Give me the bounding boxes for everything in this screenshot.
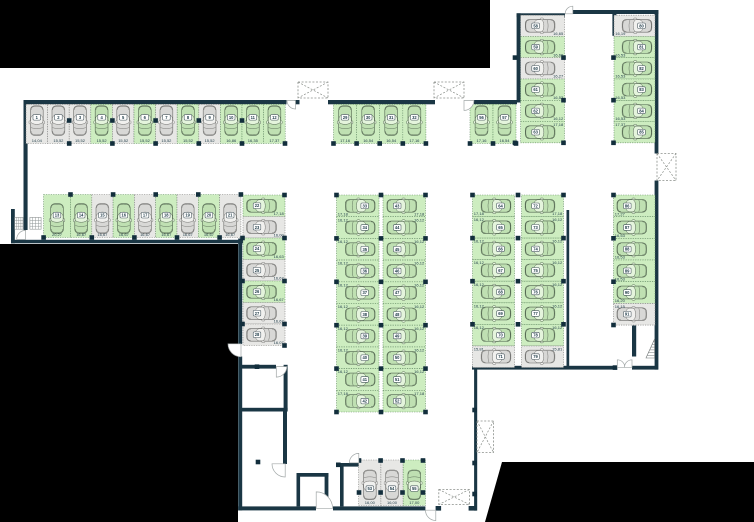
svg-text:19: 19	[185, 213, 190, 218]
svg-text:17,00: 17,00	[409, 500, 420, 505]
svg-text:17,37: 17,37	[269, 138, 280, 143]
svg-text:16,19: 16,19	[615, 31, 626, 36]
svg-text:16,12: 16,12	[414, 261, 425, 266]
svg-text:17,18: 17,18	[338, 211, 349, 216]
svg-text:47: 47	[395, 290, 400, 295]
svg-text:16,67: 16,67	[225, 232, 236, 237]
svg-text:42: 42	[363, 399, 368, 404]
svg-text:22: 22	[255, 203, 260, 208]
svg-text:17,37: 17,37	[615, 122, 626, 127]
svg-text:15,52: 15,52	[161, 138, 172, 143]
svg-text:16: 16	[122, 213, 127, 218]
svg-text:78: 78	[533, 333, 538, 338]
svg-text:46: 46	[395, 269, 400, 274]
svg-text:14: 14	[79, 213, 84, 218]
svg-text:24: 24	[255, 246, 260, 251]
svg-text:26: 26	[255, 289, 260, 294]
svg-text:15,81: 15,81	[552, 347, 563, 352]
svg-text:16,12: 16,12	[338, 326, 349, 331]
svg-text:11: 11	[251, 115, 256, 120]
svg-text:16,12: 16,12	[474, 303, 485, 308]
svg-text:15,52: 15,52	[140, 138, 151, 143]
svg-text:76: 76	[533, 290, 538, 295]
svg-text:16,20: 16,20	[615, 298, 626, 303]
svg-text:16,12: 16,12	[338, 282, 349, 287]
svg-text:25: 25	[255, 268, 260, 273]
svg-text:16,53: 16,53	[615, 95, 626, 100]
svg-text:16,12: 16,12	[414, 348, 425, 353]
svg-text:73: 73	[533, 225, 538, 230]
svg-text:17,16: 17,16	[409, 138, 420, 143]
svg-text:16,27: 16,27	[553, 74, 564, 79]
svg-text:60: 60	[533, 66, 538, 71]
svg-text:56: 56	[479, 115, 484, 120]
svg-text:17,18: 17,18	[553, 122, 564, 127]
svg-text:16,53: 16,53	[615, 74, 626, 79]
svg-text:16,12: 16,12	[338, 217, 349, 222]
svg-text:88: 88	[625, 247, 630, 252]
svg-text:16,67: 16,67	[140, 232, 151, 237]
svg-text:28: 28	[255, 332, 260, 337]
svg-text:50: 50	[395, 355, 400, 360]
svg-text:16,12: 16,12	[552, 260, 563, 265]
svg-text:15,52: 15,52	[183, 138, 194, 143]
svg-text:21: 21	[228, 213, 233, 218]
svg-text:16,12: 16,12	[338, 239, 349, 244]
svg-text:65: 65	[498, 225, 503, 230]
svg-text:17: 17	[143, 213, 148, 218]
svg-text:16,67: 16,67	[119, 232, 130, 237]
svg-text:89: 89	[625, 268, 630, 273]
svg-text:15,81: 15,81	[474, 347, 485, 352]
svg-text:75: 75	[533, 268, 538, 273]
svg-text:84: 84	[639, 108, 644, 113]
svg-text:16,12: 16,12	[474, 239, 485, 244]
svg-text:16,53: 16,53	[615, 233, 626, 238]
svg-text:20: 20	[207, 213, 212, 218]
svg-text:16,15: 16,15	[615, 304, 626, 309]
svg-text:16,63: 16,63	[274, 254, 285, 259]
svg-text:13: 13	[55, 213, 60, 218]
svg-text:33: 33	[363, 203, 368, 208]
svg-text:31: 31	[389, 115, 394, 120]
svg-text:43: 43	[395, 203, 400, 208]
svg-text:17,18: 17,18	[414, 391, 425, 396]
svg-text:23: 23	[255, 225, 260, 230]
svg-text:90: 90	[625, 290, 630, 295]
svg-text:14,04: 14,04	[32, 138, 43, 143]
svg-text:82: 82	[639, 66, 644, 71]
svg-text:16,12: 16,12	[338, 261, 349, 266]
svg-text:16,53: 16,53	[615, 116, 626, 121]
svg-text:15,52: 15,52	[53, 138, 64, 143]
svg-text:85: 85	[639, 130, 644, 135]
svg-text:15: 15	[100, 213, 105, 218]
svg-text:64: 64	[498, 203, 503, 208]
svg-text:15,52: 15,52	[75, 138, 86, 143]
svg-text:44: 44	[395, 225, 400, 230]
svg-text:68: 68	[498, 290, 503, 295]
svg-text:40: 40	[363, 355, 368, 360]
svg-text:51: 51	[395, 377, 400, 382]
svg-text:16,00: 16,00	[387, 500, 398, 505]
svg-text:48: 48	[395, 312, 400, 317]
svg-text:55: 55	[412, 486, 417, 491]
svg-text:81: 81	[639, 45, 644, 50]
svg-text:17,16: 17,16	[476, 138, 487, 143]
svg-text:62: 62	[533, 108, 538, 113]
svg-text:17,18: 17,18	[274, 211, 285, 216]
svg-text:77: 77	[533, 311, 538, 316]
svg-text:17,16: 17,16	[340, 138, 351, 143]
svg-text:17,27: 17,27	[615, 211, 626, 216]
svg-text:57: 57	[502, 115, 507, 120]
svg-text:16,54: 16,54	[363, 138, 374, 143]
svg-text:69: 69	[498, 311, 503, 316]
svg-text:16,86: 16,86	[226, 138, 237, 143]
svg-text:16,53: 16,53	[615, 255, 626, 260]
svg-text:16,12: 16,12	[474, 217, 485, 222]
svg-text:16,53: 16,53	[615, 276, 626, 281]
svg-text:16,67: 16,67	[274, 297, 285, 302]
svg-text:38: 38	[363, 312, 368, 317]
svg-text:37: 37	[363, 290, 368, 295]
svg-text:35: 35	[363, 247, 368, 252]
svg-text:54: 54	[390, 486, 395, 491]
svg-text:30: 30	[366, 115, 371, 120]
svg-text:45: 45	[395, 247, 400, 252]
svg-text:39: 39	[363, 334, 368, 339]
svg-text:34: 34	[363, 225, 368, 230]
svg-text:79: 79	[533, 354, 538, 359]
svg-text:10: 10	[229, 115, 234, 120]
svg-text:91: 91	[625, 312, 630, 317]
svg-text:32: 32	[412, 115, 417, 120]
svg-text:58: 58	[533, 23, 538, 28]
svg-text:16,12: 16,12	[338, 304, 349, 309]
svg-text:17,18: 17,18	[552, 211, 563, 216]
svg-text:17,18: 17,18	[474, 211, 485, 216]
svg-text:18: 18	[164, 213, 169, 218]
svg-text:52: 52	[395, 399, 400, 404]
svg-text:16,12: 16,12	[338, 369, 349, 374]
svg-text:16,67: 16,67	[76, 232, 87, 237]
svg-text:53: 53	[368, 486, 373, 491]
svg-text:16,12: 16,12	[552, 217, 563, 222]
svg-text:71: 71	[498, 354, 503, 359]
svg-text:16,00: 16,00	[365, 500, 376, 505]
svg-text:29: 29	[343, 115, 348, 120]
svg-text:16,12: 16,12	[414, 304, 425, 309]
svg-text:12: 12	[272, 115, 277, 120]
svg-text:16,12: 16,12	[474, 260, 485, 265]
svg-text:41: 41	[363, 377, 368, 382]
svg-text:72: 72	[533, 203, 538, 208]
svg-text:63: 63	[533, 130, 538, 135]
svg-text:16,67: 16,67	[161, 232, 172, 237]
svg-text:16,12: 16,12	[553, 116, 564, 121]
svg-text:67: 67	[498, 268, 503, 273]
svg-text:49: 49	[395, 334, 400, 339]
svg-text:16,67: 16,67	[204, 232, 215, 237]
svg-text:87: 87	[625, 225, 630, 230]
svg-text:16,12: 16,12	[474, 325, 485, 330]
svg-text:15,52: 15,52	[205, 138, 216, 143]
svg-text:16,53: 16,53	[615, 52, 626, 57]
svg-text:59: 59	[533, 45, 538, 50]
svg-text:20,27: 20,27	[52, 232, 63, 237]
svg-text:27: 27	[255, 311, 260, 316]
svg-text:83: 83	[639, 87, 644, 92]
svg-text:16,12: 16,12	[338, 348, 349, 353]
svg-text:61: 61	[533, 87, 538, 92]
svg-text:16,54: 16,54	[386, 138, 397, 143]
svg-text:17,18: 17,18	[414, 211, 425, 216]
svg-text:16,65: 16,65	[553, 31, 564, 36]
svg-text:70: 70	[498, 333, 503, 338]
svg-text:16,67: 16,67	[97, 232, 108, 237]
svg-text:15,52: 15,52	[97, 138, 108, 143]
svg-text:15,52: 15,52	[118, 138, 129, 143]
svg-text:66: 66	[498, 246, 503, 251]
svg-text:16,54: 16,54	[499, 138, 510, 143]
svg-text:86: 86	[625, 203, 630, 208]
svg-text:16,67: 16,67	[183, 232, 194, 237]
svg-text:36: 36	[363, 269, 368, 274]
svg-text:80: 80	[639, 23, 644, 28]
svg-text:16,12: 16,12	[474, 282, 485, 287]
svg-text:17,18: 17,18	[338, 391, 349, 396]
svg-text:74: 74	[533, 246, 538, 251]
svg-text:16,12: 16,12	[414, 217, 425, 222]
svg-text:16,35: 16,35	[248, 138, 259, 143]
svg-text:16,12: 16,12	[552, 303, 563, 308]
